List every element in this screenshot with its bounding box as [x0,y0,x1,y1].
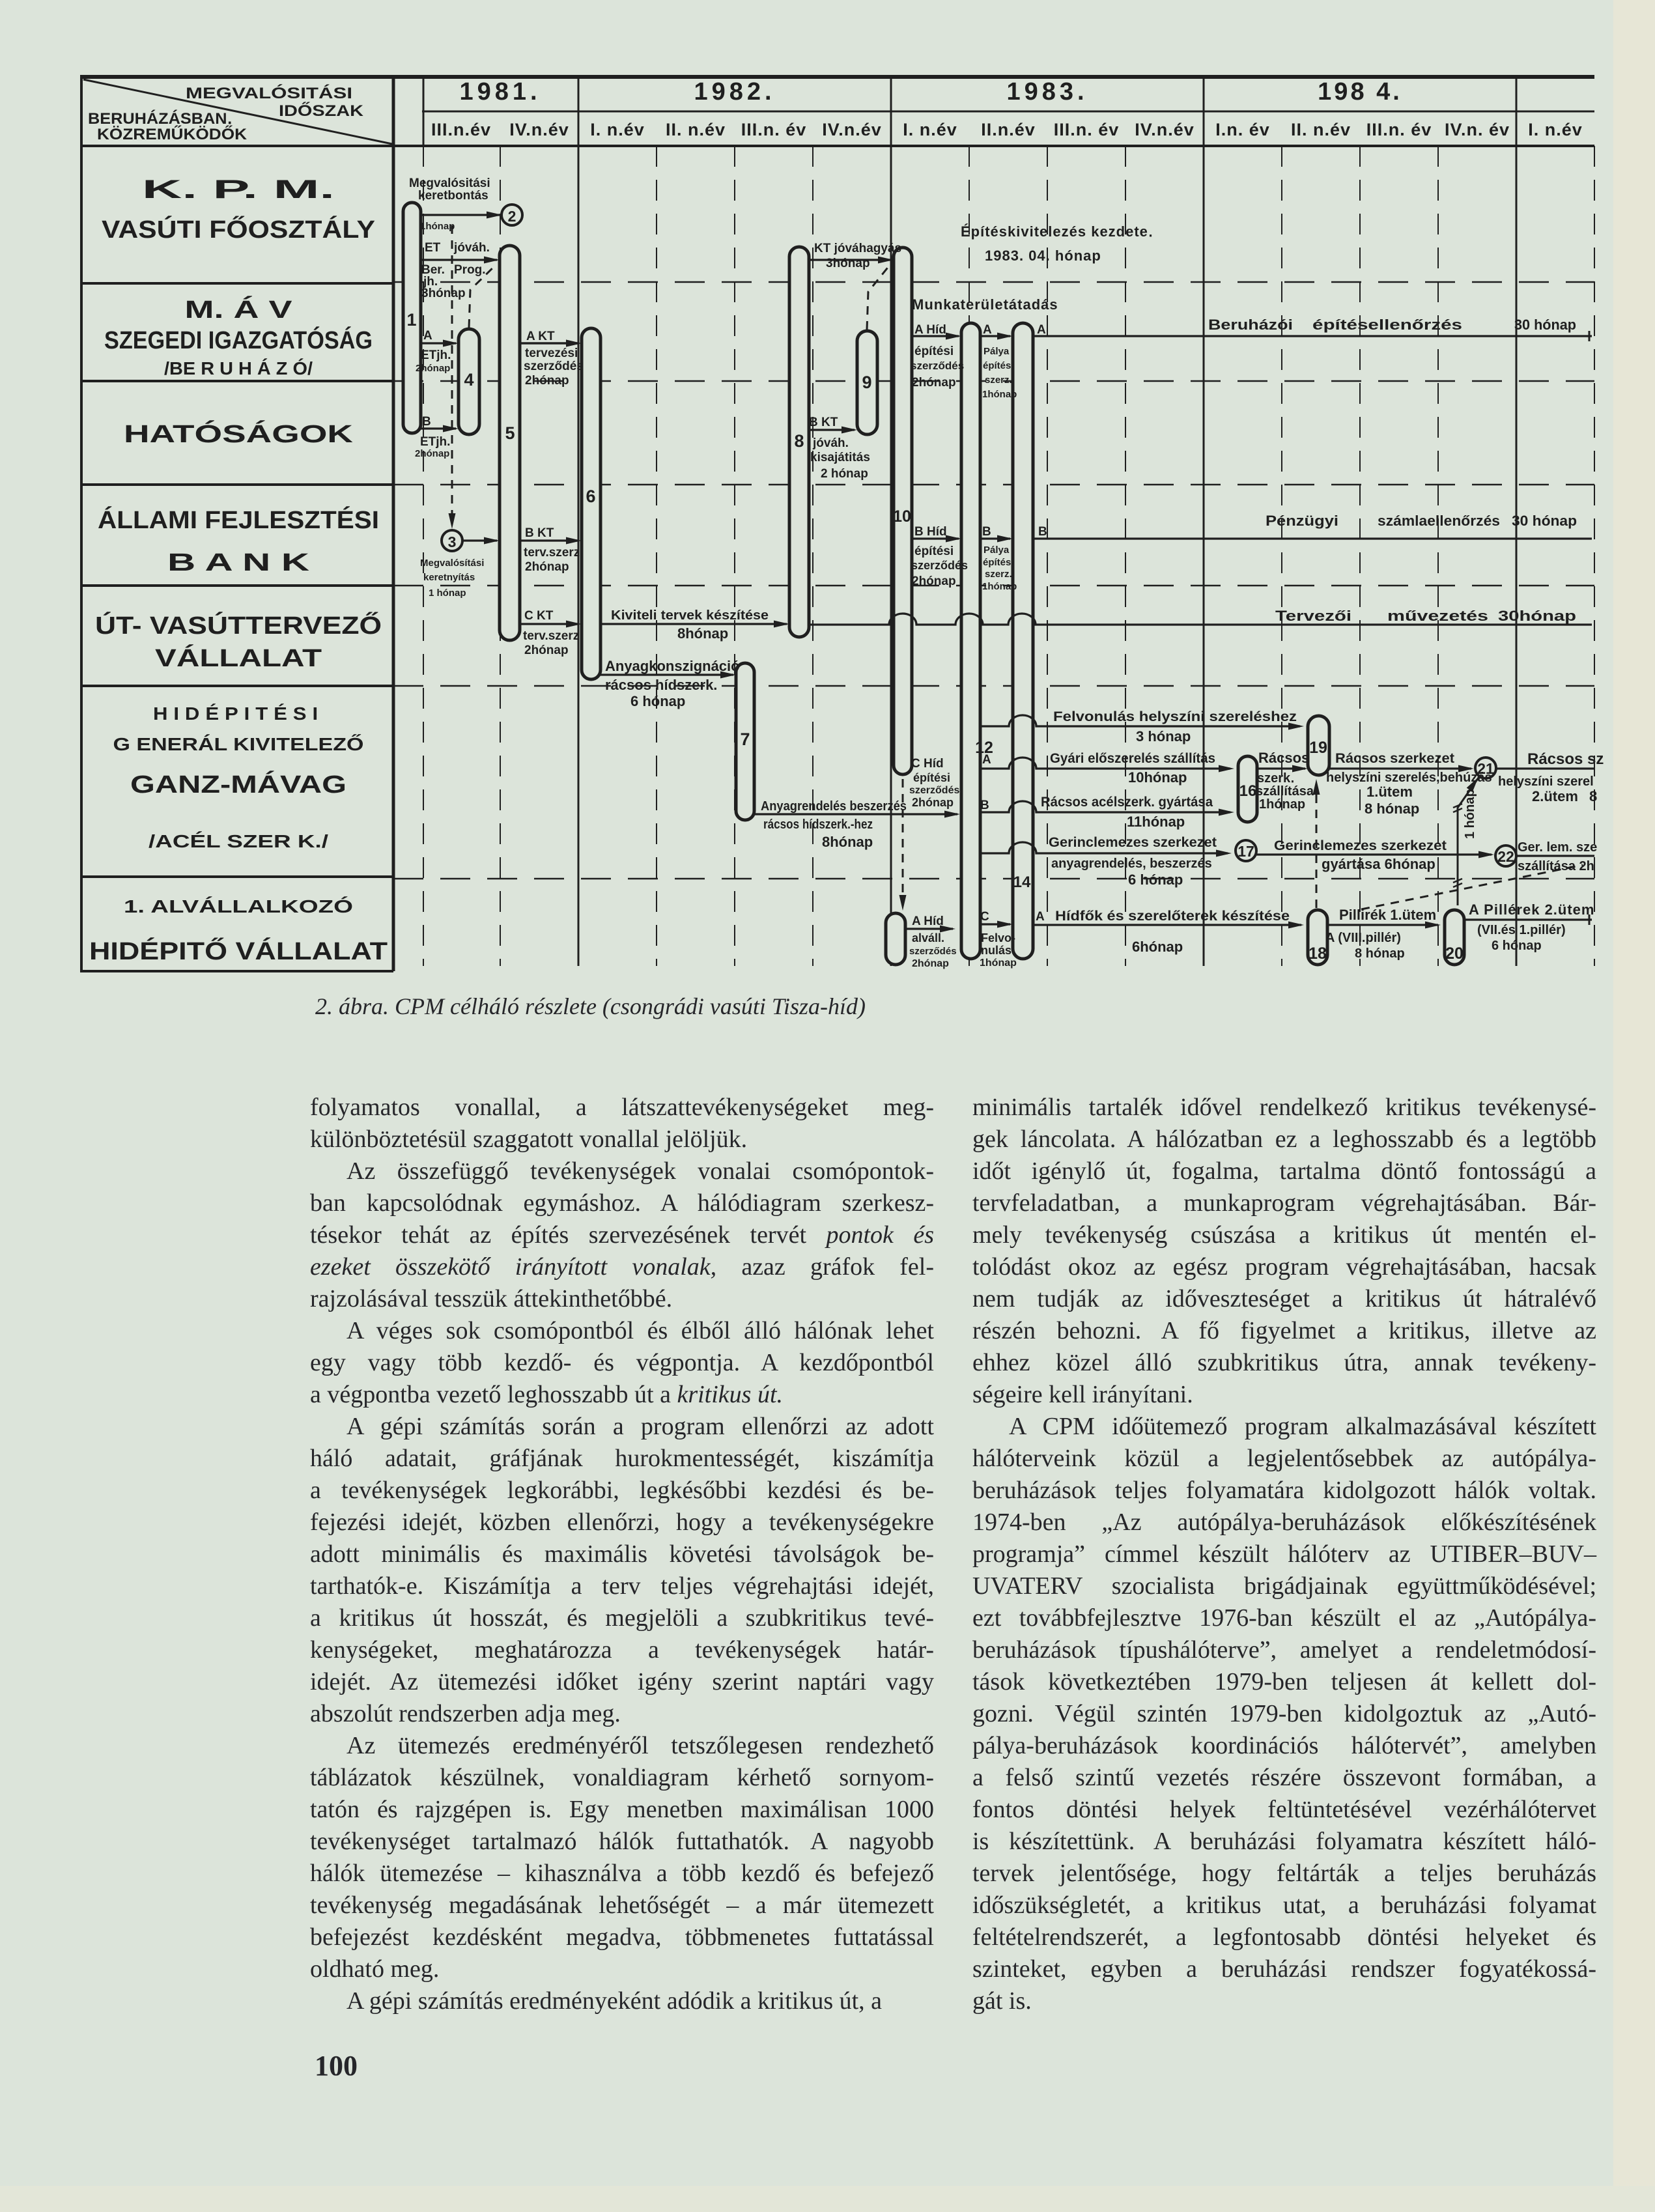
svg-text:1983.: 1983. [1006,78,1088,106]
svg-text:jóváh.: jóváh. [812,436,849,450]
svg-text:A: A [1037,323,1046,337]
svg-text:építési: építési [983,557,1014,568]
svg-text:I. n.év: I. n.év [903,120,957,139]
svg-text:3: 3 [448,533,457,550]
svg-text:16: 16 [1239,782,1257,800]
svg-text:19: 19 [1309,739,1327,757]
svg-text:2hónap: 2hónap [525,374,569,388]
svg-text:11hónap: 11hónap [1127,814,1185,830]
svg-text:Felvonulás helyszíni szerelésh: Felvonulás helyszíni szereléshez [1053,709,1297,724]
svg-text:1: 1 [406,310,416,330]
svg-text:4: 4 [464,370,474,390]
svg-text:rácsos hídszerk.-hez: rácsos hídszerk.-hez [763,817,873,832]
svg-text:B A N K: B A N K [167,549,310,576]
svg-text:ÁLLAMI FEJLESZTÉSI: ÁLLAMI FEJLESZTÉSI [98,505,379,534]
svg-text:2hónap: 2hónap [415,448,449,459]
svg-text:6 hónap: 6 hónap [630,693,685,709]
svg-text:Hídfők és szerelőterek készít: Hídfők és szerelőterek készítése [1055,909,1290,924]
svg-text:nulás: nulás [981,944,1011,957]
svg-text:Prog.: Prog. [454,263,486,277]
svg-text:Pálya: Pálya [983,545,1010,556]
svg-text:8 hónap: 8 hónap [1365,801,1419,817]
svg-text:8: 8 [1589,788,1597,804]
svg-text:Gerinclemezes szerkezet: Gerinclemezes szerkezet [1049,835,1217,850]
svg-text:/BE R U H Á Z Ó/: /BE R U H Á Z Ó/ [164,358,313,378]
svg-text:2 hónap: 2 hónap [821,467,868,481]
svg-text:K. P. M.: K. P. M. [142,175,335,204]
svg-text:B: B [1038,525,1047,539]
svg-text:A: A [423,329,432,343]
svg-text:B KT: B KT [525,526,554,540]
svg-text:művezetés: művezetés [1387,608,1488,624]
svg-text:HIDÉPITŐ VÁLLALAT: HIDÉPITŐ VÁLLALAT [89,937,388,965]
svg-text:terv.szerz.: terv.szerz. [523,629,583,643]
svg-text:I. n.év: I. n.év [1528,120,1583,139]
svg-text:30hónap: 30hónap [1498,608,1576,624]
svg-text:ETjh.: ETjh. [420,435,450,449]
svg-text:A KT: A KT [526,330,555,343]
svg-text:Gyári előszerelés szállítás: Gyári előszerelés szállítás [1050,751,1215,766]
svg-text:2.ütem: 2.ütem [1532,788,1578,804]
svg-text:építési: építési [913,771,950,784]
svg-text:30 hónap: 30 hónap [1512,513,1577,529]
svg-text:HATÓSÁGOK: HATÓSÁGOK [124,419,354,448]
svg-text:szerződés: szerződés [909,785,959,796]
svg-text:Rácsos sz: Rácsos sz [1527,750,1604,768]
svg-text:C Híd: C Híd [911,757,944,771]
svg-text:I. n.év: I. n.év [590,120,645,139]
svg-text:keretbontás: keretbontás [418,189,488,203]
svg-text:2hónap: 2hónap [912,376,956,390]
svg-text:szerk․: szerk․ [1257,771,1295,786]
svg-text:BERUHÁZÁSBAN․: BERUHÁZÁSBAN․ [88,109,233,128]
svg-text:szerződés: szerződés [911,360,964,372]
svg-text:17: 17 [1238,843,1254,860]
svg-text:2hónap: 2hónap [912,574,956,588]
svg-text:18: 18 [1308,944,1327,963]
svg-text:Pénzügyi: Pénzügyi [1266,513,1338,529]
svg-text:Megvalósítási: Megvalósítási [420,558,484,569]
svg-text:A Híd: A Híd [914,323,946,337]
svg-text:ÚT- VASÚTTERVEZŐ: ÚT- VASÚTTERVEZŐ [95,611,382,640]
svg-text:A: A [983,323,992,337]
svg-text:3hónap: 3hónap [826,257,870,270]
svg-text:1hónap: 1hónap [980,957,1017,969]
svg-text:építési: építési [914,345,954,358]
svg-text:2hónap: 2hónap [525,560,569,574]
svg-text:Pillirék 1.ütem: Pillirék 1.ütem [1339,907,1436,923]
svg-text:A (VIII.pillér): A (VIII.pillér) [1325,931,1401,945]
svg-text:(VII.és 1.pillér): (VII.és 1.pillér) [1477,923,1566,937]
svg-text:A Híd: A Híd [912,915,944,928]
svg-text:III.n. év: III.n. év [1366,120,1432,139]
svg-text:2hónap: 2hónap [524,644,569,657]
svg-text:M. Á V: M. Á V [185,295,293,324]
svg-text:3hónap: 3hónap [421,287,466,300]
svg-text:B Híd: B Híd [914,525,947,539]
svg-text:GANZ-MÁVAG: GANZ-MÁVAG [130,770,347,799]
svg-text:9: 9 [862,373,871,392]
svg-text:számlaellenőrzés: számlaellenőrzés [1378,513,1500,529]
svg-text:1 hónap: 1 hónap [1463,789,1477,839]
svg-text:alváll.: alváll. [912,931,944,944]
svg-text:B: B [980,799,989,812]
svg-text:1. ALVÁLLALKOZÓ: 1. ALVÁLLALKOZÓ [124,896,353,916]
svg-text:22: 22 [1497,848,1514,865]
svg-text:2hónap: 2hónap [912,958,949,969]
svg-text:anyagrendelés, beszerzés: anyagrendelés, beszerzés [1051,857,1212,871]
svg-text:2: 2 [508,208,516,225]
svg-text:III.n. év: III.n. év [1054,120,1120,139]
svg-text:szerződés: szerződés [909,946,957,957]
svg-text:2hónap: 2hónap [912,796,954,809]
svg-text:6 hónap: 6 hónap [1492,939,1542,953]
svg-text:gyártása 6hónap: gyártása 6hónap [1322,856,1436,872]
svg-text:III.n. év: III.n. év [741,120,807,139]
svg-text:5: 5 [505,423,515,443]
svg-text:Ger. lem. sze: Ger. lem. sze [1518,840,1597,855]
svg-text:IV.n.év: IV.n.év [509,120,569,139]
svg-text:Rácsos: Rácsos [1258,750,1309,766]
svg-text:terv.szerz: terv.szerz [524,546,580,560]
svg-text:KÖZREMŰKÖDŐK: KÖZREMŰKÖDŐK [97,125,248,143]
svg-text:Rácsos acélszerk. gyártása: Rácsos acélszerk. gyártása [1041,795,1213,810]
svg-text:Tervezői: Tervezői [1275,608,1351,624]
svg-text:III.n.év: III.n.év [431,120,491,139]
svg-text:30 hónap: 30 hónap [1514,317,1576,333]
svg-text:G ENERÁL KIVITELEZŐ: G ENERÁL KIVITELEZŐ [113,734,364,754]
svg-text:20: 20 [1445,944,1464,963]
svg-text:kisajátitás: kisajátitás [810,451,870,464]
svg-text:MEGVALÓSITÁSI: MEGVALÓSITÁSI [186,84,352,102]
svg-text:14: 14 [1013,873,1031,891]
svg-text:szerződés: szerződés [911,559,968,572]
svg-text:rácsos hídszerk.: rácsos hídszerk. [605,677,717,693]
svg-text:1982.: 1982. [694,78,775,106]
svg-text:Rácsos szerkezet: Rácsos szerkezet [1335,751,1454,766]
svg-text:6 hónap: 6 hónap [1128,872,1183,888]
svg-text:szerz.: szerz. [985,569,1012,580]
svg-text:Anyagkonszignáció: Anyagkonszignáció [605,658,740,674]
svg-text:Felvo-: Felvo- [981,931,1015,944]
svg-text:építési: építési [983,360,1014,371]
svg-text:Megvalósitási: Megvalósitási [409,177,490,190]
svg-text:1hónap: 1hónap [982,389,1017,400]
svg-text:II. n.év: II. n.év [1291,120,1351,139]
svg-text:/ACÉL SZER K./: /ACÉL SZER K./ [149,831,328,851]
svg-text:II.n.év: II.n.év [981,120,1036,139]
svg-text:építésellenőrzés: építésellenőrzés [1312,317,1462,333]
svg-text:helyszíni szerel: helyszíni szerel [1498,774,1594,789]
svg-text:Gerinclemezes szerkezet: Gerinclemezes szerkezet [1274,838,1447,853]
svg-text:6hónap: 6hónap [1132,939,1183,955]
svg-text:építési: építési [914,545,954,558]
svg-text:A Pillérek 2.ütem: A Pillérek 2.ütem [1469,901,1594,918]
svg-text:6: 6 [586,487,595,506]
svg-text:1hónap: 1hónap [420,221,455,232]
svg-text:szállítása 2h: szállítása 2h [1518,859,1594,873]
svg-text:tervezési: tervezési [525,347,578,360]
svg-text:Munkaterületátadás: Munkaterületátadás [912,296,1058,313]
svg-text:Kiviteli tervek készítése: Kiviteli tervek készítése [611,608,769,623]
svg-text:Építéskivitelezés kezdete․: Építéskivitelezés kezdete․ [961,223,1153,240]
svg-text:3 hónap: 3 hónap [1136,728,1191,744]
svg-text:IV.n. év: IV.n. év [1445,120,1510,139]
svg-text:szerz.: szerz. [985,375,1012,386]
svg-text:VÁLLALAT: VÁLLALAT [155,644,322,672]
svg-text:8hónap: 8hónap [677,625,728,642]
svg-text:B: B [422,415,431,429]
svg-text:C: C [980,910,989,924]
svg-text:10: 10 [893,507,911,526]
svg-text:A: A [1036,910,1045,924]
svg-text:A: A [982,753,991,767]
svg-text:ET: ET [425,241,441,255]
svg-text:Pálya: Pálya [983,346,1010,357]
svg-text:1 hónap: 1 hónap [429,588,466,599]
svg-text:KT jóváhagyás: KT jóváhagyás [814,242,901,255]
svg-text:helyszíni szerelés,behúzás: helyszíni szerelés,behúzás [1326,771,1492,785]
svg-text:7: 7 [740,730,750,749]
svg-text:1983. 04. hónap: 1983. 04. hónap [985,248,1101,264]
svg-text:szállítása: szállítása [1256,784,1314,799]
svg-text:Anyagrendelés beszerzés: Anyagrendelés beszerzés [761,799,907,814]
svg-text:I.n. év: I.n. év [1215,120,1270,139]
svg-text:IDŐSZAK: IDŐSZAK [279,102,364,120]
svg-text:IV.n.év: IV.n.év [822,120,882,139]
svg-text:jóváh.: jóváh. [453,241,490,255]
svg-text:10hónap: 10hónap [1128,769,1187,786]
svg-text:szerződés: szerződés [524,360,584,373]
svg-text:1hónap: 1hónap [982,581,1017,592]
svg-text:C KT: C KT [524,609,554,623]
svg-text:VASÚTI FŐOSZTÁLY: VASÚTI FŐOSZTÁLY [102,215,375,244]
svg-text:8 hónap: 8 hónap [1355,946,1405,961]
svg-text:1981.: 1981. [459,78,541,106]
svg-text:1.ütem: 1.ütem [1366,784,1413,800]
svg-text:IV.n.év: IV.n.év [1135,120,1195,139]
svg-text:HIDÉPITÉSI: HIDÉPITÉSI [153,703,324,724]
svg-text:B: B [982,525,991,539]
svg-text:B KT: B KT [809,416,838,429]
svg-text:8hónap: 8hónap [822,834,873,850]
svg-text:1hónap: 1hónap [1259,797,1305,812]
svg-text:ETjh.: ETjh. [421,348,451,362]
svg-text:2hónap: 2hónap [416,363,450,374]
svg-text:198 4.: 198 4. [1318,78,1402,106]
svg-text:Beruházói: Beruházói [1208,317,1293,333]
svg-text:II. n.év: II. n.év [666,120,726,139]
svg-text:keretnyítás: keretnyítás [423,572,475,583]
svg-text:SZEGEDI IGAZGATÓSÁG: SZEGEDI IGAZGATÓSÁG [104,326,373,354]
svg-text:8: 8 [794,431,804,451]
